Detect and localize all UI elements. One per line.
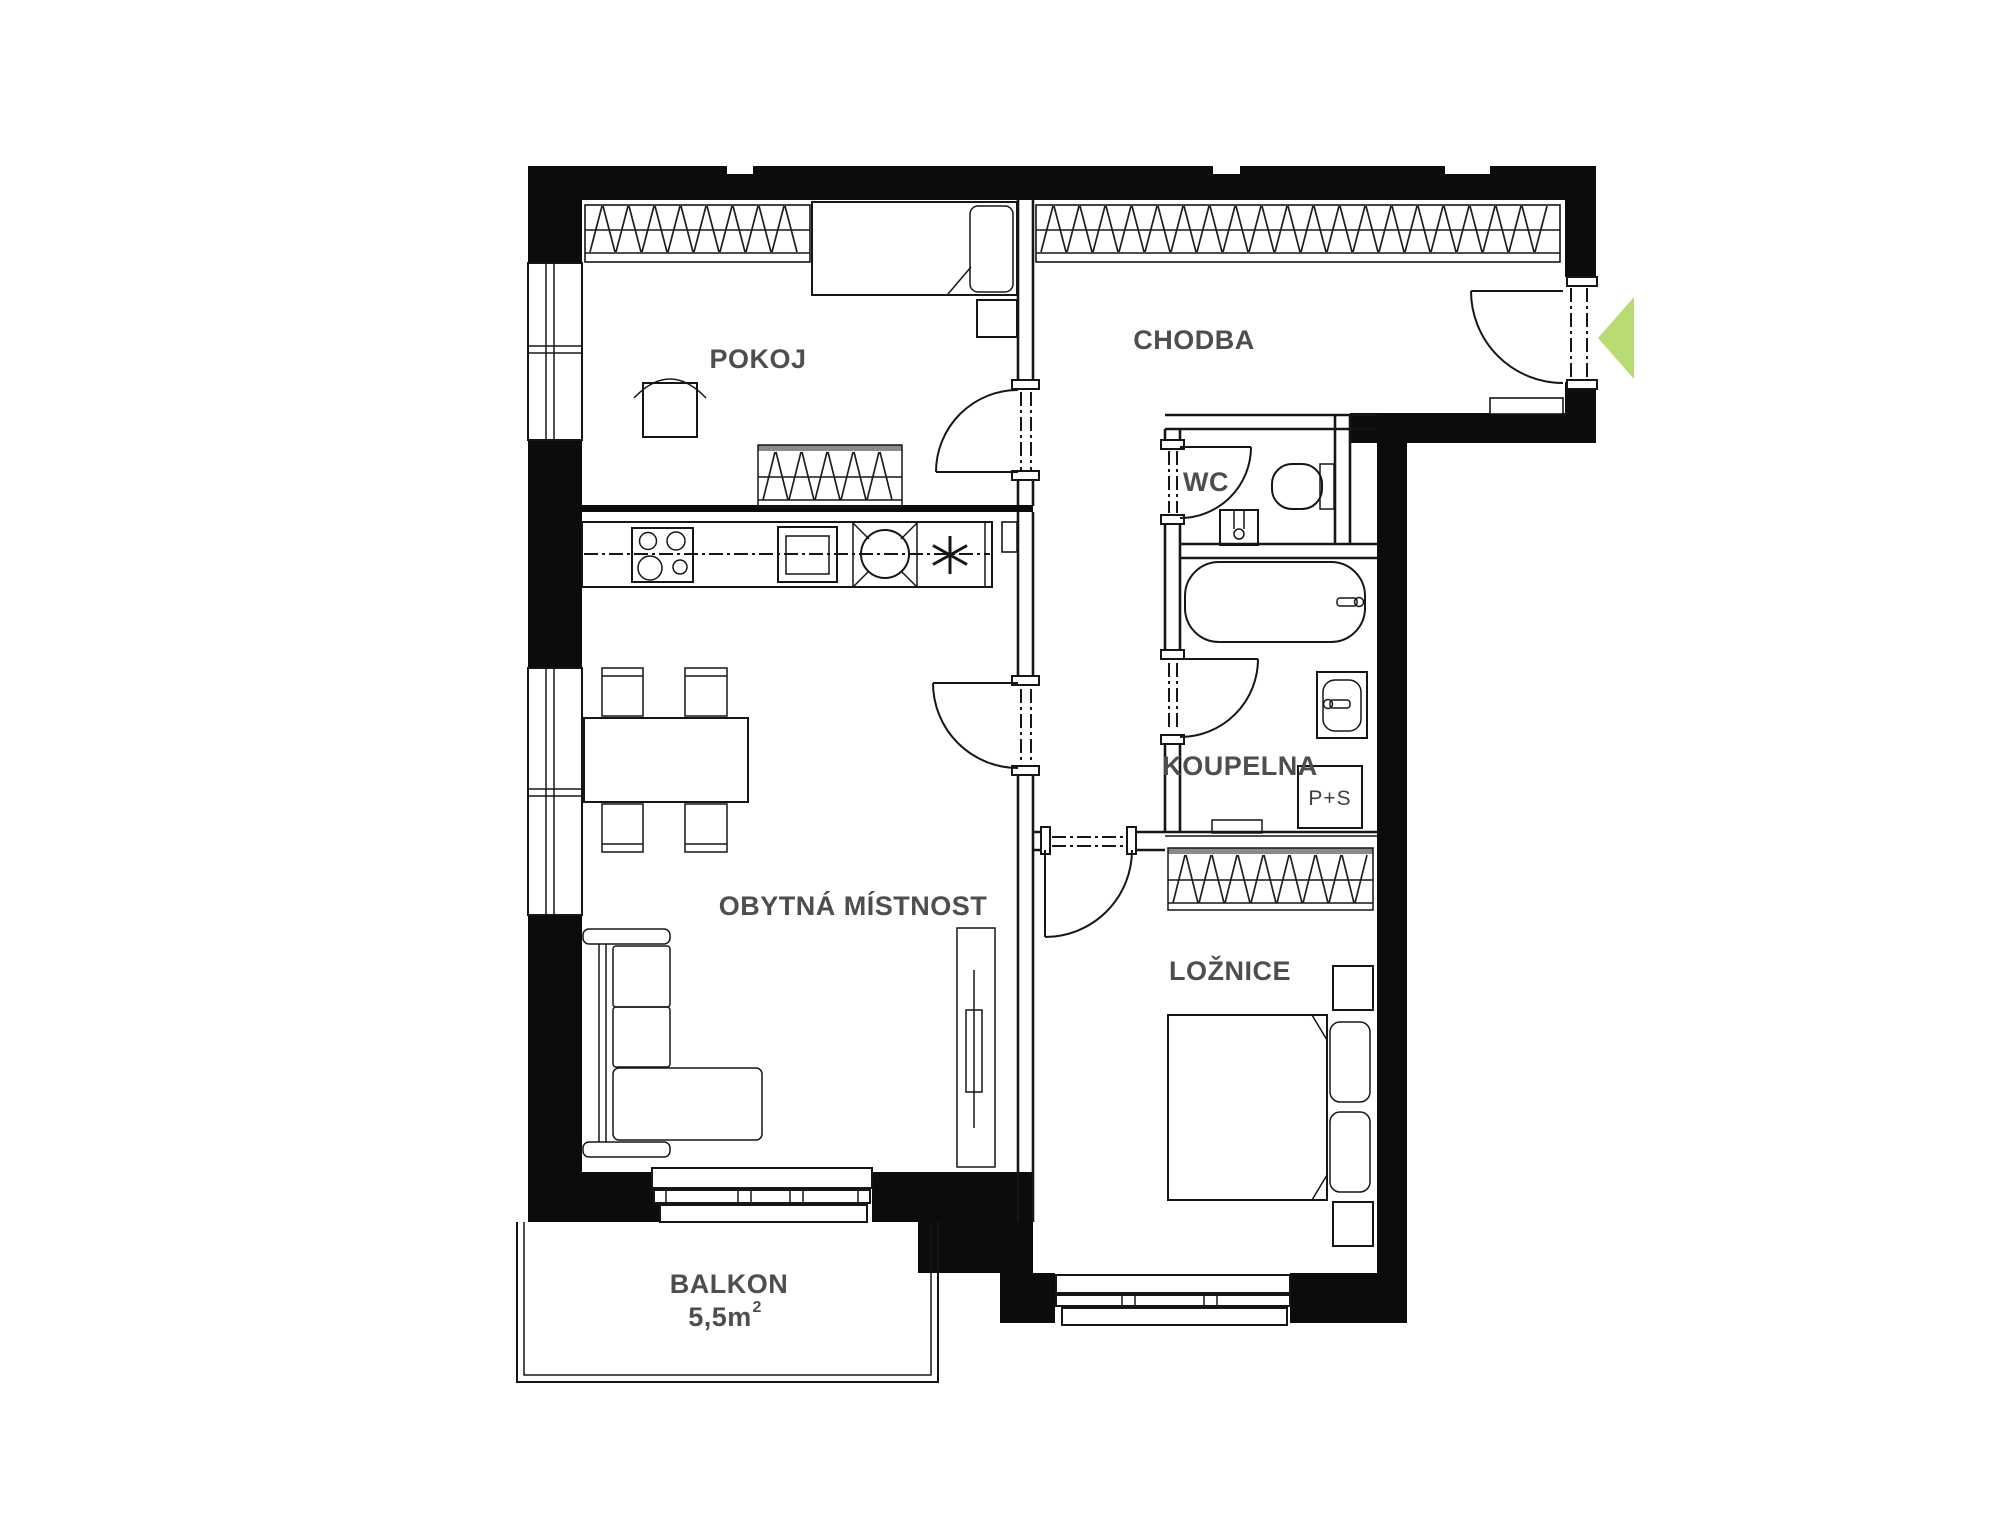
- door-jamb: [1567, 380, 1597, 389]
- pokoj-door: [936, 380, 1039, 480]
- chair: [685, 668, 727, 716]
- wardrobe-hatch-line: [1238, 855, 1250, 903]
- wall-wc-koupelna-divider: [1180, 544, 1377, 558]
- wall-bottom-center: [872, 1172, 1033, 1222]
- balkon: BALKON 5,5m 2: [517, 1222, 938, 1382]
- entrance-arrow-icon: [1598, 297, 1634, 379]
- double-bed: [1168, 1015, 1370, 1200]
- wall-bottom-left: [528, 1172, 660, 1222]
- balcony-door-window: [652, 1168, 872, 1222]
- wardrobe-hatch-line: [776, 452, 788, 500]
- bathtub-icon: [1185, 562, 1365, 642]
- wall-left-lower: [528, 915, 582, 1172]
- room-label-koupelna: KOUPELNA: [1162, 751, 1318, 781]
- wardrobe-hatch-line: [1303, 855, 1315, 903]
- single-bed: [812, 202, 1017, 295]
- wardrobe-hatch-line: [802, 452, 814, 500]
- wardrobe-hatch-line: [815, 452, 827, 500]
- door-jamb: [1567, 277, 1597, 286]
- room-label-wc: WC: [1183, 467, 1229, 497]
- wardrobe-hatch-line: [1329, 855, 1341, 903]
- balkon-area-superscript: 2: [753, 1299, 762, 1316]
- room-label-chodba: CHODBA: [1133, 325, 1255, 355]
- washbasin-icon: [1317, 672, 1367, 738]
- armchair: [634, 379, 706, 437]
- door-jamb: [1012, 380, 1039, 389]
- door-swing-arc: [1180, 659, 1258, 737]
- balkon-area-value: 5,5m: [688, 1302, 752, 1332]
- wardrobe: [1168, 848, 1373, 910]
- door-swing-arc: [933, 683, 1018, 768]
- wardrobe: [758, 445, 902, 507]
- room-koupelna: P+S KOUPELNA: [1162, 562, 1367, 833]
- room-label-pokoj: POKOJ: [709, 344, 806, 374]
- wall-wc-right: [1335, 415, 1350, 544]
- corner-sofa: [583, 929, 762, 1157]
- room-label-loznice: LOŽNICE: [1169, 955, 1291, 986]
- wardrobe-hatch-line: [1186, 855, 1198, 903]
- panel-joint: [1213, 166, 1240, 174]
- wardrobe-hatch-line: [1355, 855, 1367, 903]
- outer-walls: [528, 166, 1596, 1323]
- duct-box: [1002, 522, 1017, 552]
- chair: [602, 804, 643, 852]
- wall-top-left-corner: [528, 200, 582, 264]
- room-loznice: LOŽNICE: [1168, 848, 1373, 1246]
- window-obytna-left: [528, 668, 582, 915]
- window-loznice: [1056, 1275, 1290, 1325]
- room-obytna-mistnost: OBYTNÁ MÍSTNOST: [582, 522, 1017, 1167]
- wardrobe-hatch-line: [789, 452, 801, 500]
- room-pokoj: POKOJ: [585, 202, 1017, 507]
- loznice-door: [1041, 827, 1136, 937]
- door-swing-arc: [1471, 291, 1563, 383]
- koupelna-door: [1161, 650, 1258, 744]
- window-pokoj-left: [528, 263, 582, 440]
- nightstand: [1333, 966, 1373, 1010]
- wall-pokoj-obytna: [582, 505, 1033, 512]
- pillow: [1330, 1112, 1370, 1192]
- wall-entrance-bottom: [1565, 382, 1596, 443]
- wardrobe-hatch-line: [1251, 855, 1263, 903]
- door-swing-arc: [936, 390, 1018, 472]
- chair: [685, 804, 727, 852]
- obytna-door: [933, 676, 1039, 775]
- toilet-icon: [1272, 464, 1334, 509]
- wall-wc-top: [1165, 415, 1377, 429]
- wc-washbasin-icon: [1220, 510, 1258, 545]
- wardrobe-hatch-line: [1199, 855, 1211, 903]
- door-swing-arc: [1045, 850, 1132, 937]
- panel-joint: [1445, 166, 1490, 174]
- room-label-obytna-mistnost: OBYTNÁ MÍSTNOST: [719, 890, 988, 921]
- wardrobe-hatch-line: [880, 452, 892, 500]
- wardrobe-hatch-line: [1277, 855, 1289, 903]
- dining-table: [584, 718, 748, 802]
- chair: [602, 668, 643, 716]
- floor-plan-page: POKOJ CHODBA WC: [0, 0, 2000, 1524]
- nightstand: [977, 300, 1017, 337]
- wardrobe-hatch-line: [854, 452, 866, 500]
- pillow: [1330, 1022, 1370, 1102]
- washer-dryer-label: P+S: [1308, 787, 1351, 810]
- wardrobe: [1036, 205, 1560, 262]
- wall-left-middle: [528, 440, 582, 668]
- door-jamb: [1161, 650, 1184, 659]
- wardrobe-hatch-line: [828, 452, 840, 500]
- room-label-balkon: BALKON: [670, 1269, 789, 1299]
- wardrobe: [585, 205, 810, 262]
- floor-plan-drawing: POKOJ CHODBA WC: [0, 0, 2000, 1524]
- wardrobe-hatch-line: [1264, 855, 1276, 903]
- tv-cabinet: [957, 928, 995, 1167]
- room-wc: WC: [1183, 464, 1334, 545]
- wall-loznice-bottom-left: [1000, 1273, 1055, 1323]
- wall-top: [528, 166, 1596, 200]
- wardrobe-hatch-line: [841, 452, 853, 500]
- wall-chodba-bottom: [1350, 413, 1596, 443]
- wall-right: [1377, 413, 1407, 1323]
- wardrobe-hatch-line: [1342, 855, 1354, 903]
- wall-entrance-top: [1565, 166, 1596, 277]
- wardrobe-hatch-line: [1225, 855, 1237, 903]
- wall-step-balcony: [918, 1222, 1033, 1273]
- entrance-mat: [1490, 398, 1563, 414]
- wardrobe-hatch-line: [867, 452, 879, 500]
- door-jamb: [1161, 515, 1184, 524]
- wardrobe-hatch-line: [1316, 855, 1328, 903]
- door-jamb: [1041, 827, 1050, 854]
- wardrobe-hatch-line: [1212, 855, 1224, 903]
- nightstand: [1333, 1202, 1373, 1246]
- wardrobe-hatch-line: [1173, 855, 1185, 903]
- wall-obytna-corridor: [1018, 512, 1033, 1222]
- panel-joint: [727, 166, 753, 174]
- kitchen-counter: [582, 522, 1017, 587]
- door-jamb: [1127, 827, 1136, 854]
- wardrobe-hatch-line: [1290, 855, 1302, 903]
- wardrobe-hatch-line: [763, 452, 775, 500]
